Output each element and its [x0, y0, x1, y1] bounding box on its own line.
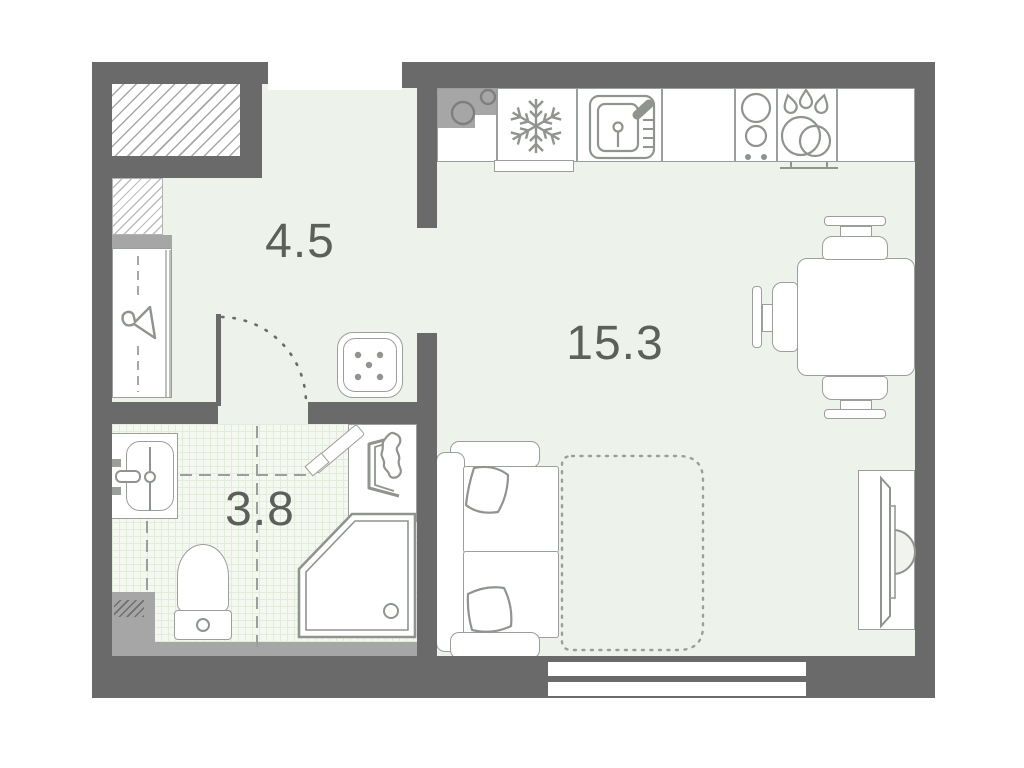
- wall-middle-lower: [417, 333, 437, 656]
- chair-left-backrest: [752, 286, 762, 348]
- entrance-opening: [268, 62, 402, 90]
- sofa-seat-2: [463, 551, 559, 638]
- floor-plan: 4.5 15.3 3.8: [0, 0, 1024, 768]
- chair-top-seat: [822, 236, 888, 260]
- wardrobe: [112, 248, 172, 398]
- bathroom-area-label: 3.8: [210, 484, 310, 536]
- washbasin-bowl: [126, 441, 174, 511]
- ventilation-shaft-small: [112, 178, 163, 235]
- shaft-wall-bottom: [92, 156, 262, 178]
- chair-bottom-backrest: [824, 409, 886, 419]
- hallway-area-label: 4.5: [245, 216, 355, 268]
- chair-left-seat: [772, 282, 798, 352]
- ventilation-shaft-large: [112, 84, 240, 156]
- tv-niche: [858, 470, 915, 630]
- plumbing-hatch: [114, 600, 144, 617]
- plumbing-channel: [150, 642, 417, 656]
- kitchen-corner-shaft-2: [438, 89, 475, 128]
- sofa-backrest: [436, 452, 465, 652]
- dining-table: [797, 258, 915, 376]
- living-room-area-label: 15.3: [555, 318, 675, 370]
- bathroom-door-leaf: [216, 314, 221, 406]
- window-glass-2: [548, 682, 806, 696]
- chair-top-backrest: [824, 216, 886, 226]
- pouf-inner: [343, 338, 397, 392]
- window-glass-1: [548, 662, 806, 676]
- toilet-tank: [174, 610, 232, 640]
- fridge-door: [494, 160, 574, 172]
- chair-bottom-seat: [822, 376, 888, 400]
- sofa-armrest-bottom: [450, 632, 540, 659]
- wall-right: [915, 62, 935, 698]
- wardrobe-top-panel: [112, 235, 172, 249]
- wall-top-left: [92, 62, 268, 84]
- wall-top-right: [402, 62, 935, 88]
- wall-middle-upper: [417, 84, 437, 228]
- wall-bottom: [92, 656, 935, 698]
- wall-bathroom-right: [308, 402, 437, 424]
- kitchen-counter: [437, 88, 915, 162]
- toilet-bowl: [177, 544, 229, 614]
- wall-bathroom-left: [112, 402, 218, 424]
- sofa-seat-1: [463, 466, 559, 553]
